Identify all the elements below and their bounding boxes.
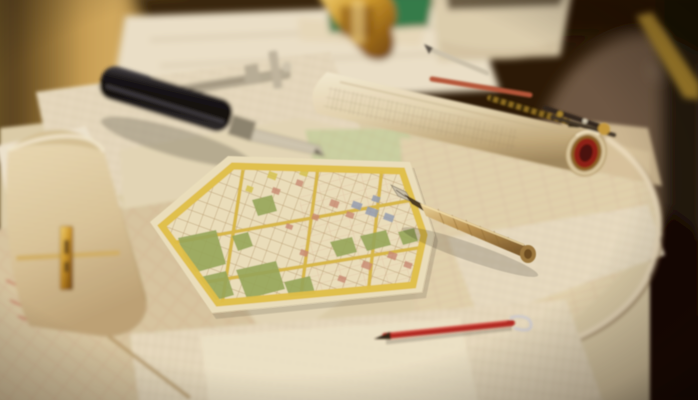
vignette [0,0,698,400]
photo-stage [0,0,698,400]
desk-photo [0,0,698,400]
